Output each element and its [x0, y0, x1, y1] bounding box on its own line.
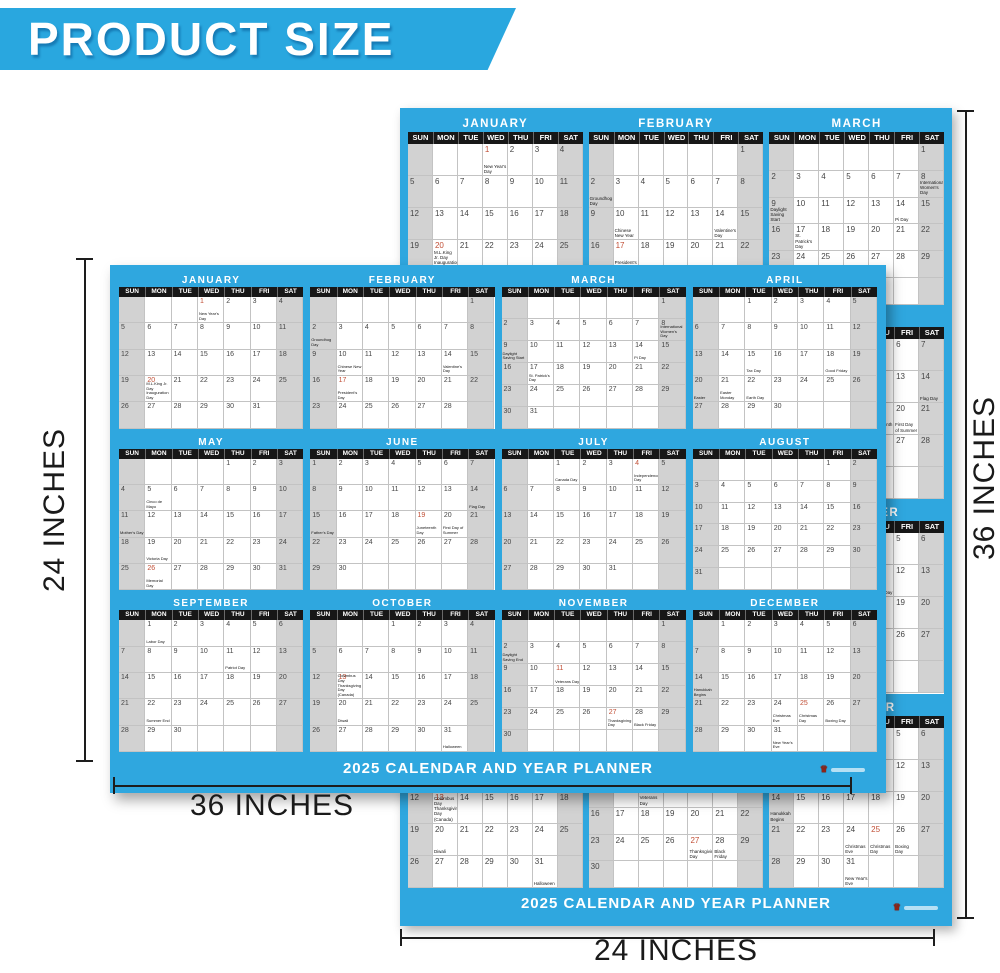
- day-number: 2: [418, 621, 422, 628]
- day-cell: 22: [198, 376, 224, 402]
- weekday-label-wed: WED: [389, 449, 415, 459]
- day-number: 10: [774, 648, 782, 655]
- day-cell: 4: [558, 144, 583, 176]
- day-cell: 30: [337, 564, 363, 590]
- day-cell: 1: [919, 144, 944, 171]
- day-cell: 18: [119, 538, 145, 564]
- day-cell: 4: [389, 459, 415, 485]
- day-cell: 17: [844, 792, 869, 824]
- day-number: 2: [771, 172, 775, 181]
- day-cell: 18: [277, 350, 303, 376]
- day-number: 15: [147, 674, 155, 681]
- month-december: DECEMBERSUNMONTUEWEDTHUFRISAT12345678910…: [693, 597, 877, 752]
- day-cell: 9: [580, 485, 606, 511]
- day-number: 2: [339, 460, 343, 467]
- day-number: 14: [715, 209, 724, 218]
- day-number: 4: [470, 621, 474, 628]
- day-number: 25: [821, 252, 830, 261]
- day-cell: 15: [224, 511, 250, 537]
- day-number: 5: [896, 729, 900, 738]
- day-number: 16: [821, 793, 830, 802]
- day-cell: 25: [554, 385, 580, 407]
- day-cell: 10: [442, 647, 468, 673]
- day-number: 19: [666, 809, 675, 818]
- day-number: 31: [609, 565, 617, 572]
- day-number: 23: [774, 377, 782, 384]
- day-number: 28: [200, 565, 208, 572]
- day-number: 26: [666, 836, 675, 845]
- day-cell: 19: [408, 824, 433, 856]
- holiday-label: Thanksgiving Day: [608, 719, 632, 728]
- day-cell: 1: [659, 620, 685, 642]
- holiday-label: Daylight Saving Start: [503, 352, 527, 361]
- day-cell: 2Daylight Saving End: [502, 642, 528, 664]
- holiday-label: Boxing Day: [895, 844, 918, 854]
- day-cell: 17: [533, 792, 558, 824]
- weekday-label-fri: FRI: [824, 610, 850, 620]
- day-number: 26: [147, 565, 155, 572]
- weekday-label-tue: TUE: [554, 449, 580, 459]
- day-cell: 3: [277, 459, 303, 485]
- day-cell: 29: [198, 402, 224, 428]
- day-number: 19: [747, 525, 755, 532]
- day-grid: 12345678International Women's Day9Daylig…: [502, 297, 686, 429]
- day-number: 25: [279, 377, 287, 384]
- day-cell: 28: [528, 564, 554, 590]
- weekday-label-sun: SUN: [310, 610, 336, 620]
- day-number: 7: [460, 177, 464, 186]
- day-cell: 6: [277, 620, 303, 646]
- day-number: 28: [715, 836, 724, 845]
- day-number: 5: [853, 298, 857, 305]
- holiday-label: Valentine's Day: [443, 365, 467, 374]
- day-number: 12: [410, 209, 419, 218]
- day-cell: [363, 564, 389, 590]
- weekday-label-wed: WED: [664, 132, 689, 144]
- day-number: 17: [530, 364, 538, 371]
- day-cell: 12: [664, 208, 689, 240]
- day-number: 20: [921, 598, 930, 607]
- day-number: 11: [226, 648, 233, 655]
- day-cell: 25: [224, 699, 250, 725]
- month-body: SUNMONTUEWEDTHUFRISAT12345678Internation…: [502, 287, 686, 429]
- day-cell: 15: [483, 792, 508, 824]
- day-number: 23: [504, 386, 512, 393]
- weekday-label-wed: WED: [198, 287, 224, 297]
- weekday-header-row: SUNMONTUEWEDTHUFRISAT: [119, 287, 303, 297]
- day-number: 17: [609, 512, 617, 519]
- day-number: 22: [147, 700, 155, 707]
- day-cell: 11: [633, 485, 659, 511]
- weekday-label-wed: WED: [389, 610, 415, 620]
- day-grid: 1234567891011121314Flag Day15Father's Da…: [310, 459, 494, 591]
- day-cell: 9: [251, 485, 277, 511]
- weekday-label-sat: SAT: [851, 610, 877, 620]
- weekday-label-thu: THU: [224, 287, 250, 297]
- day-cell: [769, 144, 794, 171]
- weekday-label-thu: THU: [798, 449, 824, 459]
- day-cell: 18: [558, 208, 583, 240]
- day-cell: 14: [798, 503, 824, 525]
- day-cell: [919, 661, 944, 693]
- day-cell: 16: [502, 686, 528, 708]
- day-cell: 21Easter Monday: [719, 376, 745, 402]
- day-number: 6: [774, 482, 778, 489]
- holiday-label: Independence Day: [634, 474, 658, 483]
- day-number: 31: [535, 857, 544, 866]
- day-cell: 7: [633, 642, 659, 664]
- weekday-label-tue: TUE: [554, 287, 580, 297]
- day-cell: 1: [468, 297, 494, 323]
- day-cell: 5: [580, 319, 606, 341]
- holiday-label: Mother's Day: [120, 531, 144, 536]
- day-number: 20: [279, 674, 287, 681]
- weekday-header-row: SUNMONTUEWEDTHUFRISAT: [693, 287, 877, 297]
- weekday-label-fri: FRI: [633, 449, 659, 459]
- weekday-label-wed: WED: [198, 610, 224, 620]
- weekday-label-fri: FRI: [533, 132, 558, 144]
- day-cell: 16: [589, 808, 614, 835]
- day-number: 14: [174, 351, 182, 358]
- day-cell: 5: [408, 176, 433, 208]
- day-cell: 11: [798, 647, 824, 673]
- holiday-label: Hanukkah Begins: [694, 688, 718, 697]
- day-cell: [458, 144, 483, 176]
- weekday-label-thu: THU: [607, 610, 633, 620]
- day-number: 21: [365, 700, 373, 707]
- day-number: 30: [226, 403, 234, 410]
- day-cell: 26: [851, 376, 877, 402]
- day-number: 29: [485, 857, 494, 866]
- day-number: 12: [418, 486, 426, 493]
- day-cell: [389, 297, 415, 323]
- day-cell: [894, 856, 919, 888]
- month-title: JANUARY: [119, 274, 303, 287]
- day-cell: 31New Year's Eve: [772, 726, 798, 752]
- day-cell: 11Mother's Day: [119, 511, 145, 537]
- day-number: 17: [695, 525, 703, 532]
- day-number: 27: [921, 630, 930, 639]
- day-number: 24: [609, 539, 617, 546]
- day-number: 23: [510, 241, 519, 250]
- day-number: 31: [695, 569, 703, 576]
- day-number: 30: [774, 403, 782, 410]
- day-number: 29: [147, 727, 155, 734]
- holiday-label: New Year's Eve: [845, 876, 868, 886]
- day-number: 18: [391, 512, 399, 519]
- day-cell: 4: [554, 319, 580, 341]
- day-number: 4: [800, 621, 804, 628]
- day-number: 29: [721, 727, 729, 734]
- day-cell: [693, 297, 719, 323]
- day-number: 7: [695, 648, 699, 655]
- day-cell: [745, 568, 771, 590]
- day-cell: 21: [468, 511, 494, 537]
- day-number: 11: [560, 177, 568, 186]
- day-cell: [659, 564, 685, 590]
- day-cell: 20: [851, 673, 877, 699]
- day-number: 14: [200, 512, 208, 519]
- weekday-label-sat: SAT: [851, 287, 877, 297]
- day-cell: 18: [719, 524, 745, 546]
- day-number: 2: [582, 460, 586, 467]
- holiday-label: Groundhog Day: [590, 196, 613, 206]
- day-cell: 26: [580, 708, 606, 730]
- day-number: 13: [174, 512, 182, 519]
- day-number: 21: [896, 225, 905, 234]
- day-number: 16: [591, 241, 600, 250]
- day-cell: 18: [389, 511, 415, 537]
- day-number: 7: [800, 482, 804, 489]
- day-cell: 22: [824, 524, 850, 546]
- day-cell: 17: [693, 524, 719, 546]
- day-cell: 8: [198, 323, 224, 349]
- day-number: 26: [826, 700, 834, 707]
- weekday-label-wed: WED: [772, 449, 798, 459]
- day-cell: [172, 297, 198, 323]
- weekday-label-sun: SUN: [408, 132, 433, 144]
- day-number: 19: [410, 241, 419, 250]
- holiday-label: Memorial Day: [146, 579, 170, 588]
- day-cell: 27: [416, 402, 442, 428]
- day-number: 12: [121, 351, 129, 358]
- day-cell: [633, 620, 659, 642]
- day-cell: 27: [919, 629, 944, 661]
- day-number: 21: [444, 377, 452, 384]
- day-cell: [408, 144, 433, 176]
- day-number: 7: [896, 172, 900, 181]
- day-cell: 29: [145, 726, 171, 752]
- day-cell: [554, 407, 580, 429]
- day-number: 5: [121, 324, 125, 331]
- day-number: 28: [800, 547, 808, 554]
- holiday-label: Patriot Day: [225, 666, 249, 671]
- day-number: 19: [147, 539, 155, 546]
- day-cell: 2: [772, 297, 798, 323]
- day-number: 15: [226, 512, 234, 519]
- day-cell: [119, 297, 145, 323]
- day-number: 15: [747, 351, 755, 358]
- day-number: 7: [174, 324, 178, 331]
- month-title: AUGUST: [693, 436, 877, 449]
- day-cell: 31: [277, 564, 303, 590]
- day-number: 17: [530, 687, 538, 694]
- day-cell: 15: [659, 664, 685, 686]
- day-cell: 26: [659, 538, 685, 564]
- day-cell: 25: [389, 538, 415, 564]
- day-cell: 13: [172, 511, 198, 537]
- day-cell: 26: [389, 402, 415, 428]
- holiday-label: Christmas Day: [799, 714, 823, 723]
- day-number: 12: [147, 512, 155, 519]
- day-cell: 19: [580, 686, 606, 708]
- day-cell: 28: [693, 726, 719, 752]
- day-number: 11: [279, 324, 286, 331]
- day-cell: [310, 297, 336, 323]
- month-august: AUGUSTSUNMONTUEWEDTHUFRISAT1234567891011…: [693, 436, 877, 591]
- day-number: 9: [312, 351, 316, 358]
- month-october: OCTOBERSUNMONTUEWEDTHUFRISAT123456789101…: [310, 597, 494, 752]
- month-body: SUNMONTUEWEDTHUFRISAT1Canada Day234Indep…: [502, 449, 686, 591]
- day-cell: 10: [693, 503, 719, 525]
- day-cell: 11: [468, 647, 494, 673]
- day-number: 13: [444, 486, 452, 493]
- day-number: 11: [365, 351, 372, 358]
- day-cell: 13Columbus Day Thanksgiving Day (Canada): [433, 792, 458, 824]
- day-number: 9: [774, 324, 778, 331]
- day-number: 17: [444, 674, 452, 681]
- day-number: 23: [226, 377, 234, 384]
- day-number: 1: [826, 460, 830, 467]
- month-body: SUNMONTUEWEDTHUFRISAT1234567891011121314…: [693, 610, 877, 752]
- day-number: 16: [510, 209, 519, 218]
- holiday-label: Columbus Day Thanksgiving Day (Canada): [338, 674, 362, 697]
- day-number: 29: [661, 386, 669, 393]
- day-cell: 5: [389, 323, 415, 349]
- day-cell: 4: [554, 642, 580, 664]
- day-cell: 10: [607, 485, 633, 511]
- day-cell: 21: [458, 824, 483, 856]
- month-july: JULYSUNMONTUEWEDTHUFRISAT1Canada Day234I…: [502, 436, 686, 591]
- day-number: 5: [582, 320, 586, 327]
- weekday-label-mon: MON: [719, 610, 745, 620]
- brand-text-strip: [831, 768, 865, 772]
- day-cell: 11: [554, 341, 580, 363]
- day-number: 27: [435, 857, 444, 866]
- day-number: 22: [721, 700, 729, 707]
- day-number: 5: [826, 621, 830, 628]
- day-number: 13: [921, 566, 930, 575]
- day-number: 23: [591, 836, 600, 845]
- day-number: 15: [661, 665, 669, 672]
- day-cell: 20: [772, 524, 798, 546]
- month-title: MARCH: [502, 274, 686, 287]
- month-june: JUNESUNMONTUEWEDTHUFRISAT123456789101112…: [310, 436, 494, 591]
- weekday-label-fri: FRI: [633, 610, 659, 620]
- product-size-image: PRODUCT SIZE JANUARYSUNMONTUEWEDTHUFRISA…: [0, 0, 1000, 973]
- day-number: 21: [635, 364, 643, 371]
- day-number: 17: [616, 241, 625, 250]
- day-number: 5: [418, 460, 422, 467]
- day-number: 16: [774, 351, 782, 358]
- day-cell: 28: [468, 538, 494, 564]
- weekday-label-tue: TUE: [554, 610, 580, 620]
- weekday-label-thu: THU: [416, 449, 442, 459]
- back-height-dimension-line: [965, 110, 967, 918]
- month-title: JULY: [502, 436, 686, 449]
- day-number: 15: [470, 351, 478, 358]
- day-number: 2: [853, 460, 857, 467]
- day-cell: 14: [458, 208, 483, 240]
- day-cell: 30: [580, 564, 606, 590]
- day-number: 26: [896, 630, 905, 639]
- day-cell: [851, 402, 877, 428]
- day-cell: 6: [337, 647, 363, 673]
- day-cell: 23: [851, 524, 877, 546]
- day-cell: 18: [639, 808, 664, 835]
- day-cell: 31New Year's Eve: [844, 856, 869, 888]
- weekday-label-wed: WED: [772, 287, 798, 297]
- weekday-label-sun: SUN: [119, 610, 145, 620]
- weekday-label-tue: TUE: [745, 287, 771, 297]
- day-number: 24: [530, 709, 538, 716]
- day-number: 17: [535, 793, 544, 802]
- day-cell: 16: [508, 208, 533, 240]
- day-cell: 3: [528, 642, 554, 664]
- day-cell: [869, 144, 894, 171]
- day-number: 18: [365, 377, 373, 384]
- day-number: 27: [609, 709, 617, 716]
- day-cell: 30: [416, 726, 442, 752]
- weekday-header-row: SUNMONTUEWEDTHUFRISAT: [310, 287, 494, 297]
- day-number: 9: [510, 177, 514, 186]
- day-cell: 11Veterans Day: [554, 664, 580, 686]
- day-number: 25: [826, 377, 834, 384]
- day-number: 17: [846, 793, 855, 802]
- day-number: 18: [800, 674, 808, 681]
- day-number: 29: [826, 547, 834, 554]
- weekday-label-sun: SUN: [502, 610, 528, 620]
- day-cell: 22: [554, 538, 580, 564]
- day-number: 26: [391, 403, 399, 410]
- day-number: 22: [796, 825, 805, 834]
- day-number: 31: [253, 403, 261, 410]
- day-cell: 2: [416, 620, 442, 646]
- day-cell: 29: [919, 251, 944, 278]
- day-cell: 4: [798, 620, 824, 646]
- holiday-label: Groundhog Day: [311, 338, 335, 347]
- day-number: 13: [871, 199, 880, 208]
- day-number: 12: [846, 199, 855, 208]
- day-cell: 12: [145, 511, 171, 537]
- day-cell: [528, 730, 554, 752]
- day-cell: 28: [919, 435, 944, 467]
- weekday-header-row: SUNMONTUEWEDTHUFRISAT: [693, 610, 877, 620]
- day-cell: 20: [688, 808, 713, 835]
- day-cell: 8International Women's Day: [659, 319, 685, 341]
- weekday-header-row: SUNMONTUEWEDTHUFRISAT: [502, 287, 686, 297]
- day-number: 23: [582, 539, 590, 546]
- day-cell: 7: [119, 647, 145, 673]
- day-number: 28: [771, 857, 780, 866]
- day-number: 28: [365, 727, 373, 734]
- day-cell: 17: [607, 511, 633, 537]
- month-title: NOVEMBER: [502, 597, 686, 610]
- day-cell: 5: [894, 533, 919, 565]
- month-title: MARCH: [769, 116, 944, 132]
- day-cell: 10Chinese New Year: [337, 350, 363, 376]
- day-cell: [794, 144, 819, 171]
- day-number: 20: [339, 700, 347, 707]
- day-cell: [607, 620, 633, 642]
- weekday-label-sun: SUN: [693, 287, 719, 297]
- day-cell: 20Diwali: [433, 824, 458, 856]
- day-cell: 3: [198, 620, 224, 646]
- day-number: 11: [635, 486, 642, 493]
- day-cell: 14: [528, 511, 554, 537]
- day-cell: 14: [119, 673, 145, 699]
- day-number: 20: [774, 525, 782, 532]
- day-number: 7: [715, 177, 719, 186]
- day-cell: 25: [824, 376, 850, 402]
- day-cell: 1: [310, 459, 336, 485]
- day-cell: 13: [894, 371, 919, 403]
- day-number: 19: [253, 674, 261, 681]
- day-number: 2: [253, 460, 257, 467]
- day-cell: [554, 297, 580, 319]
- day-cell: 30: [502, 407, 528, 429]
- day-cell: 18: [224, 673, 250, 699]
